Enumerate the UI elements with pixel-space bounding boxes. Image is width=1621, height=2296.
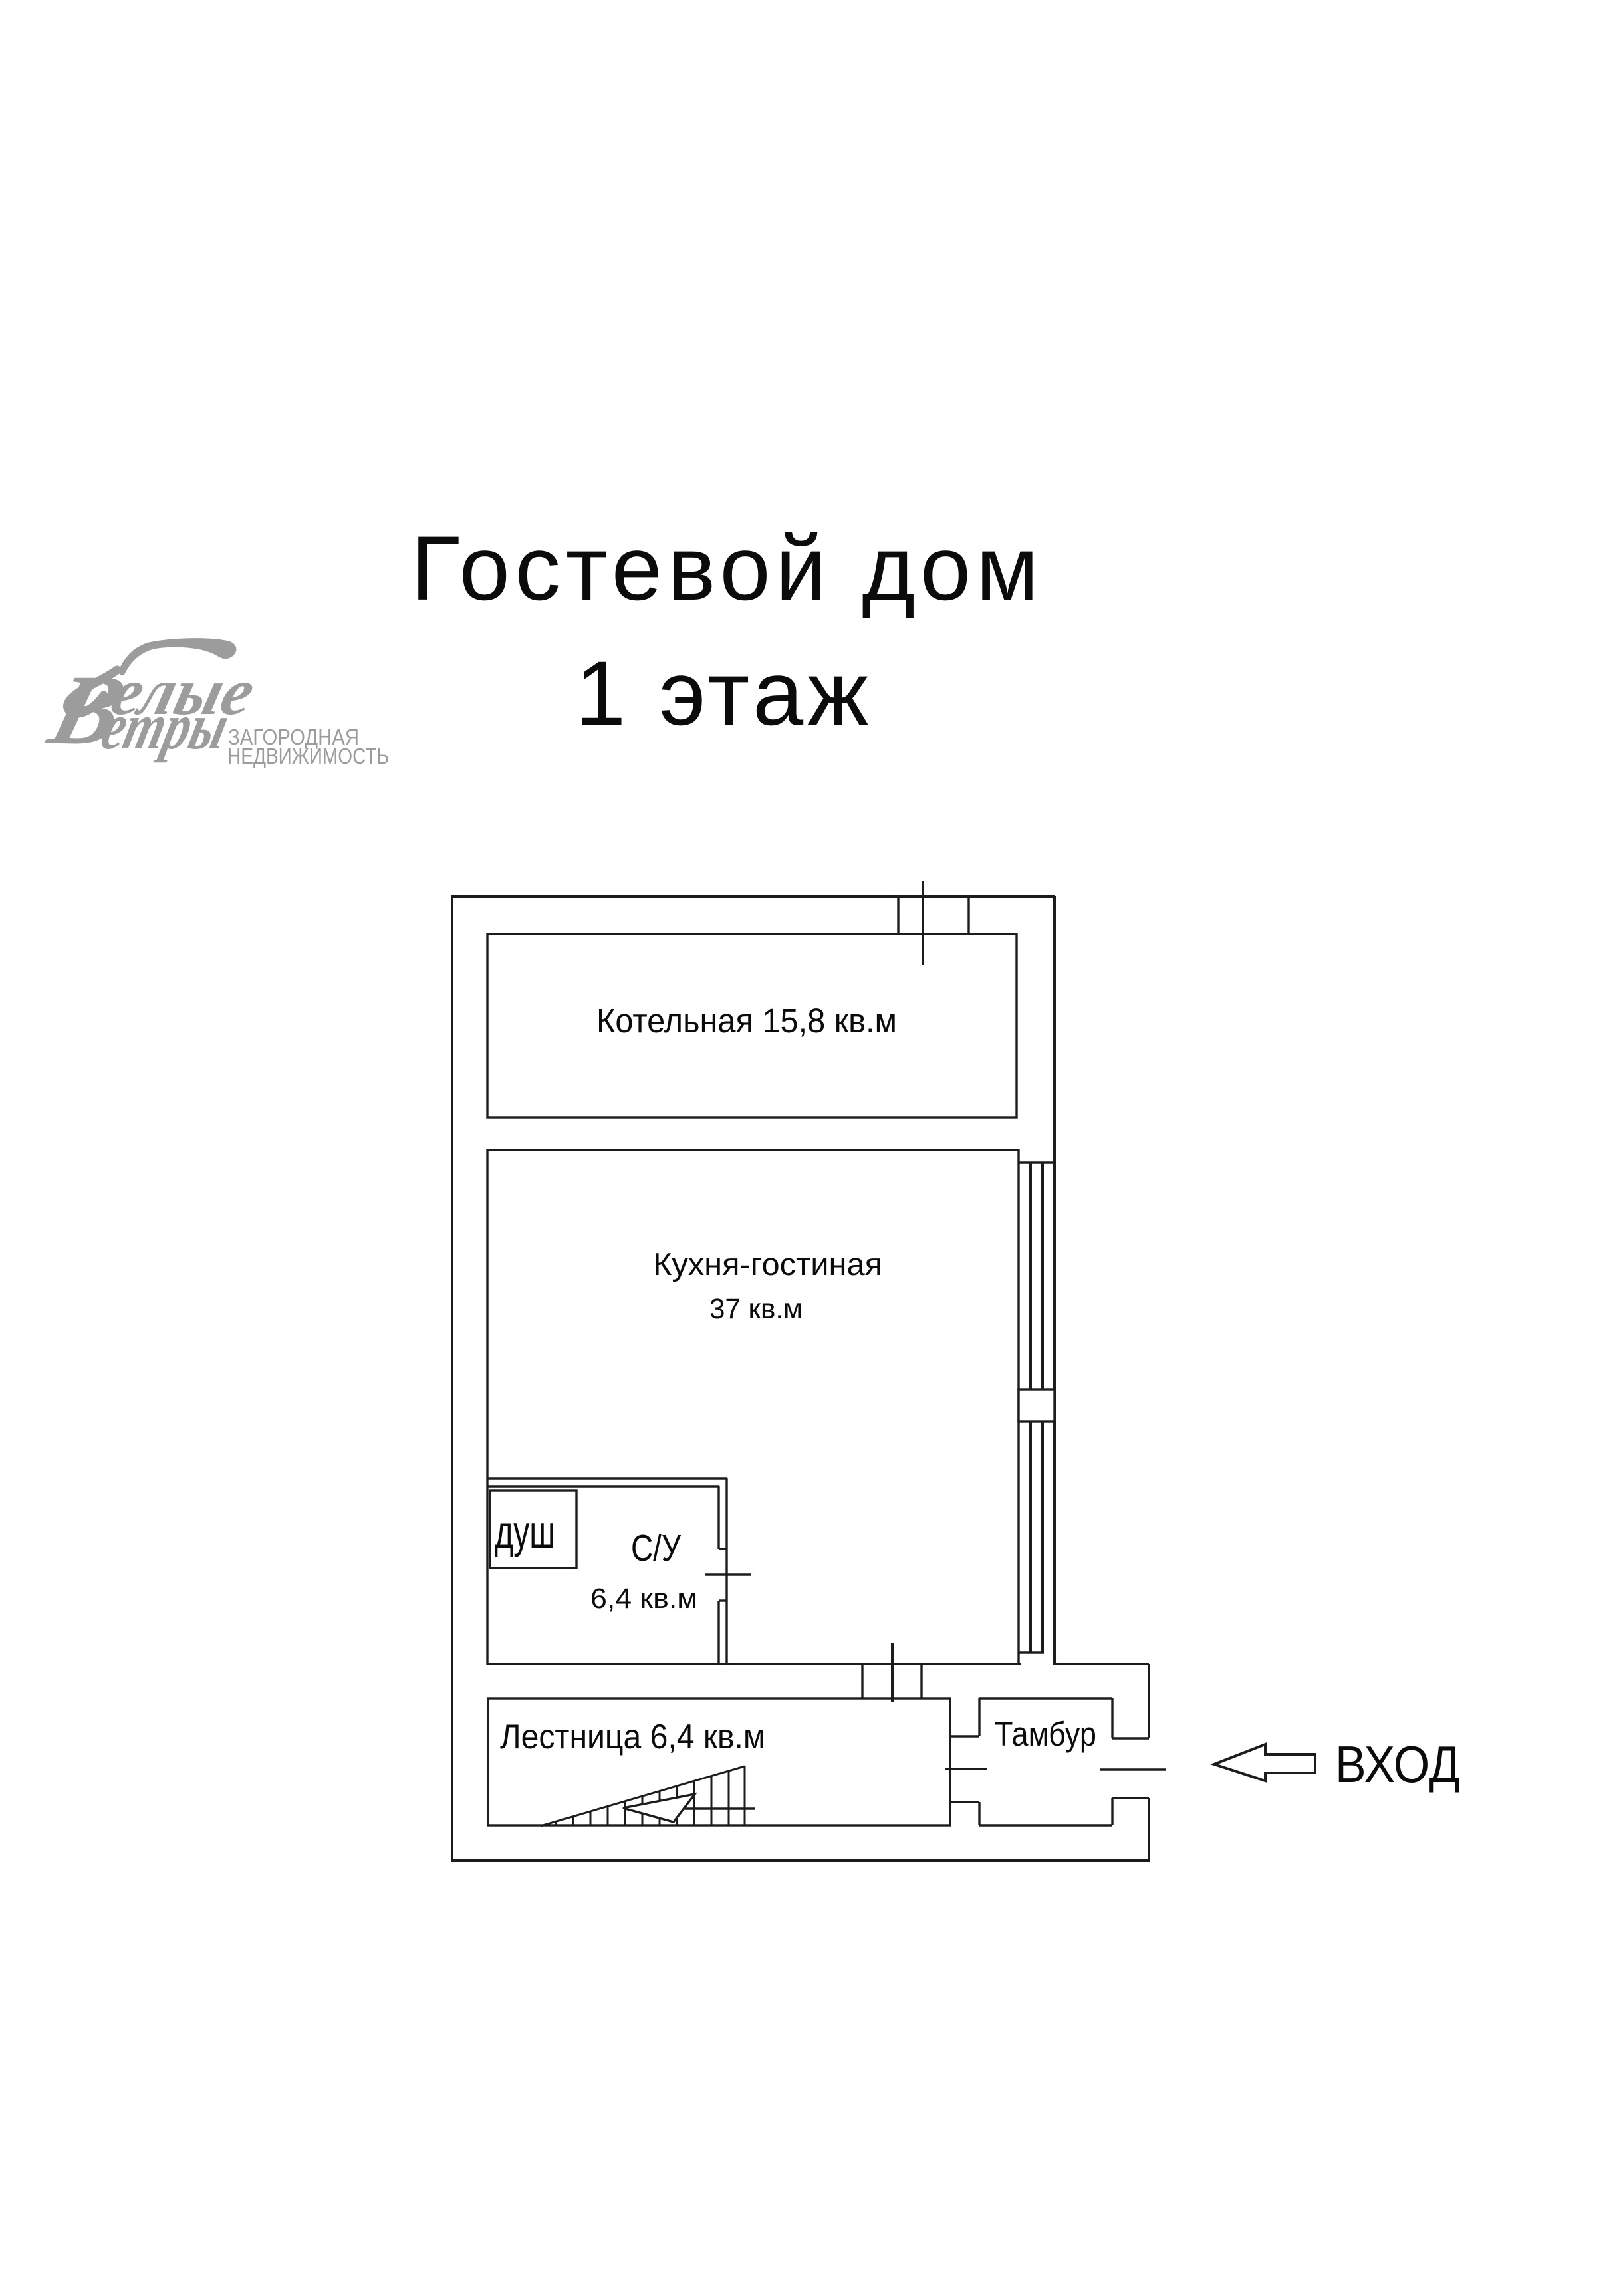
svg-text:1 этаж: 1 этаж: [575, 643, 868, 745]
svg-text:6,4 кв.м: 6,4 кв.м: [590, 1583, 697, 1615]
svg-text:Котельная 15,8 кв.м: Котельная 15,8 кв.м: [596, 1002, 897, 1040]
svg-text:Гостевой дом: Гостевой дом: [411, 518, 1039, 620]
svg-text:37 кв.м: 37 кв.м: [709, 1293, 803, 1325]
svg-text:ВХОД: ВХОД: [1335, 1735, 1460, 1793]
svg-text:Кухня-гостиная: Кухня-гостиная: [653, 1246, 882, 1282]
svg-text:Лестница 6,4 кв.м: Лестница 6,4 кв.м: [500, 1718, 765, 1756]
svg-text:Тамбур: Тамбур: [995, 1715, 1096, 1753]
svg-text:С/У: С/У: [631, 1527, 682, 1569]
svg-text:душ: душ: [495, 1506, 555, 1557]
svg-text:НЕДВИЖИМОСТЬ: НЕДВИЖИМОСТЬ: [227, 744, 389, 768]
